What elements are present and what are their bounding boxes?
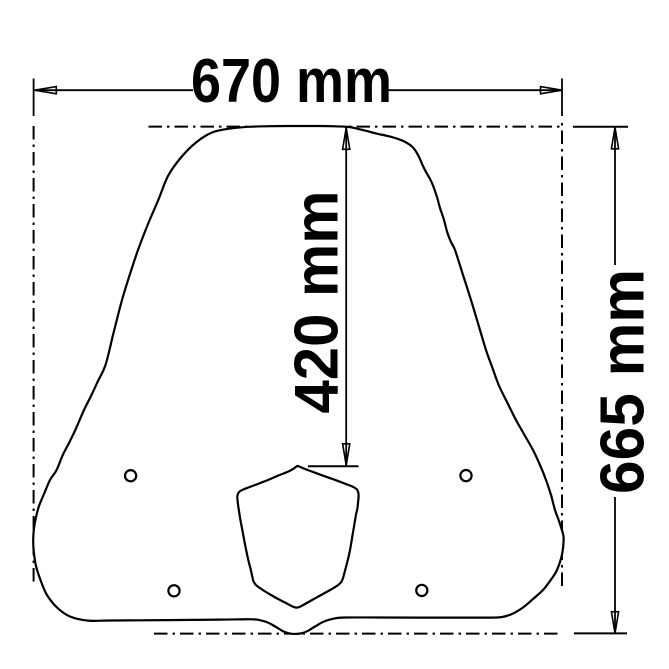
svg-text:665 mm: 665 mm — [589, 269, 658, 494]
svg-text:670 mm: 670 mm — [191, 47, 392, 116]
svg-text:420 mm: 420 mm — [283, 191, 352, 414]
